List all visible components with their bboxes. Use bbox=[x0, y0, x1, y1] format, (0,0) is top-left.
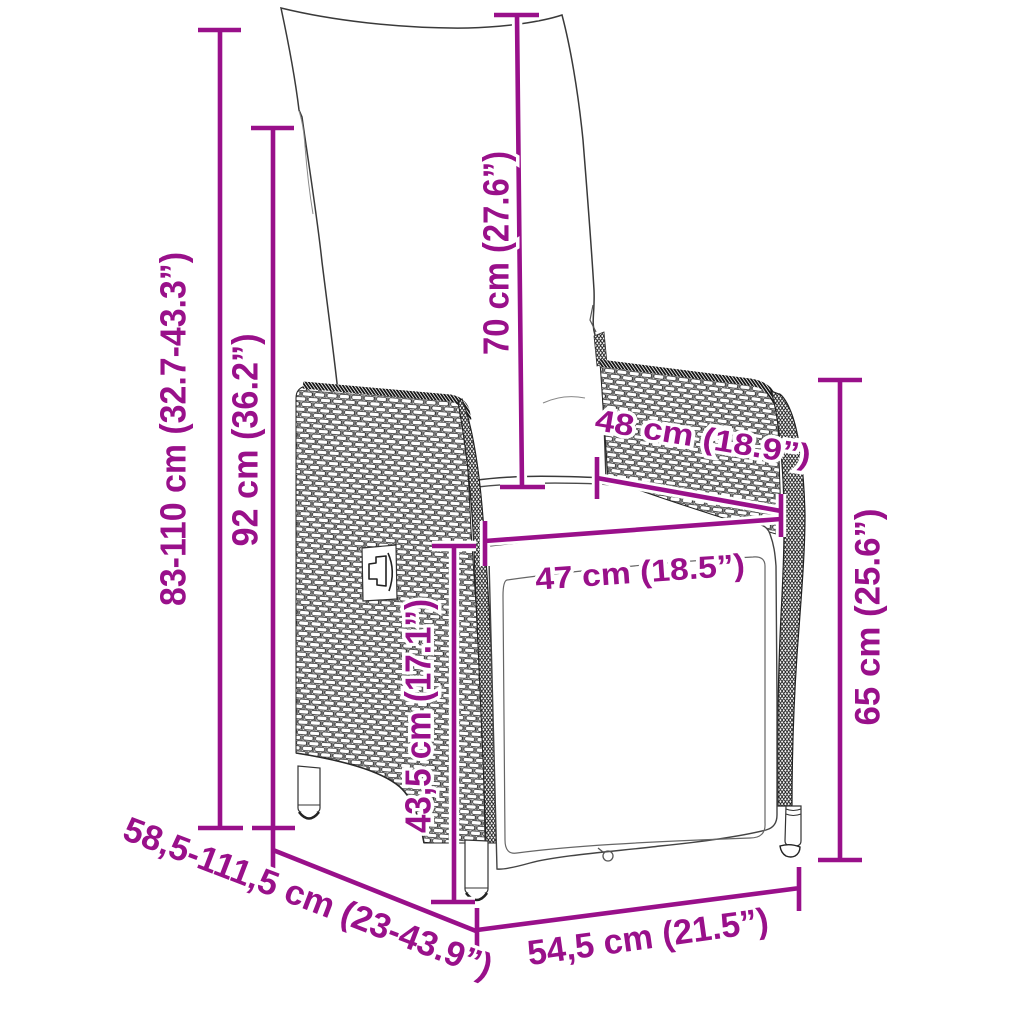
svg-text:70 cm (27.6”): 70 cm (27.6”) bbox=[476, 151, 517, 355]
svg-text:43,5 cm (17.1”): 43,5 cm (17.1”) bbox=[398, 599, 439, 833]
svg-text:92 cm (36.2”): 92 cm (36.2”) bbox=[225, 334, 266, 547]
svg-text:65 cm (25.6”): 65 cm (25.6”) bbox=[849, 509, 888, 726]
svg-text:83-110 cm (32.7-43.3”): 83-110 cm (32.7-43.3”) bbox=[153, 252, 194, 606]
